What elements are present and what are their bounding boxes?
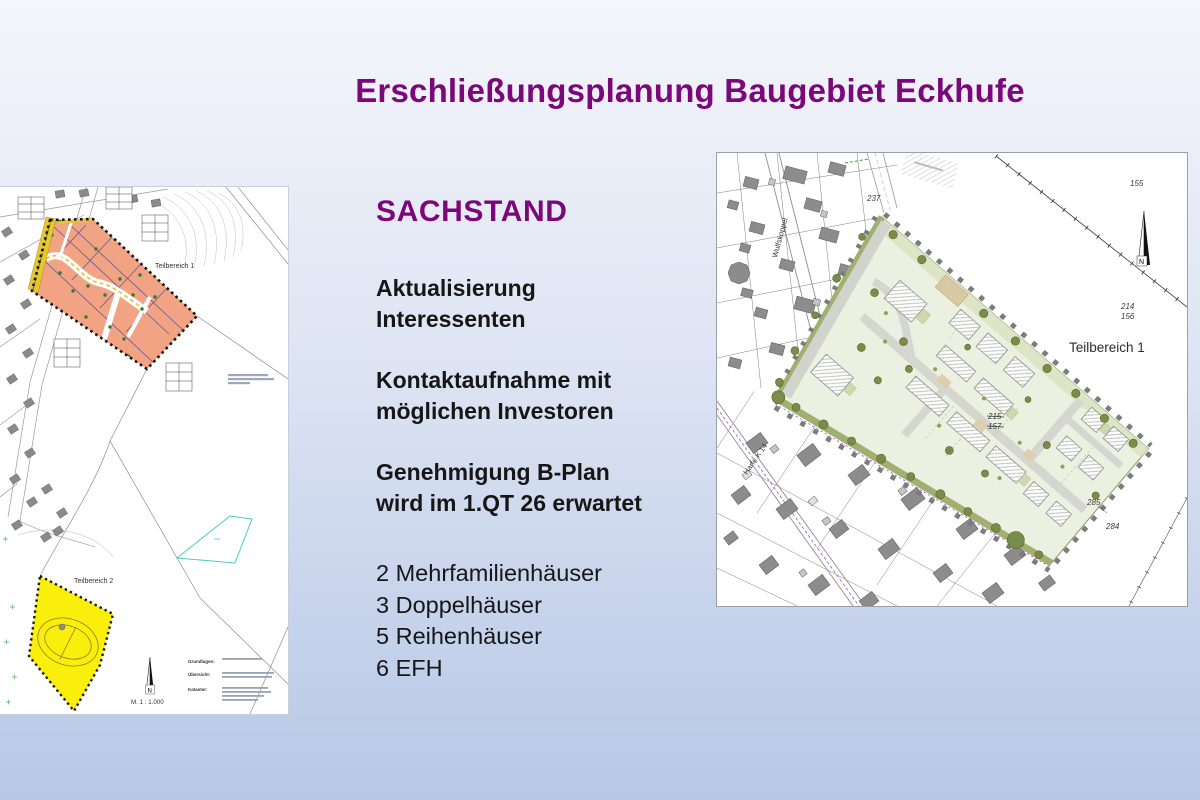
parcel-number: 156 xyxy=(1121,312,1135,321)
svg-text:Kataster:: Kataster: xyxy=(188,687,208,692)
left-map-svg: Teilbereich 1 Teilbereich 2 N M. 1 : 1.0… xyxy=(0,187,288,714)
parcel-number: 214 xyxy=(1120,302,1135,311)
list-item: 3 Doppelhäuser xyxy=(376,590,602,622)
map-scale-text: M. 1 : 1.000 xyxy=(131,699,164,706)
svg-text:Übersicht:: Übersicht: xyxy=(188,671,211,677)
right-map-siteplan: 155 237 214 156 215 157 285 284 Teilbere… xyxy=(716,152,1188,607)
paragraph-line: wird im 1.QT 26 erwartet xyxy=(376,488,642,519)
teilbereich1-label: Teilbereich 1 xyxy=(1069,340,1145,355)
paragraph-aktualisierung: Aktualisierung Interessenten xyxy=(376,273,536,335)
paragraph-kontaktaufnahme: Kontaktaufnahme mit möglichen Investoren xyxy=(376,365,614,427)
left-map-bplan-overview: Teilbereich 1 Teilbereich 2 N M. 1 : 1.0… xyxy=(0,186,289,715)
page-title: Erschließungsplanung Baugebiet Eckhufe xyxy=(180,72,1200,110)
svg-text:N: N xyxy=(148,689,152,695)
paragraph-line: Genehmigung B-Plan xyxy=(376,457,642,488)
housing-type-list: 2 Mehrfamilienhäuser 3 Doppelhäuser 5 Re… xyxy=(376,558,602,684)
paragraph-line: möglichen Investoren xyxy=(376,396,614,427)
svg-text:N: N xyxy=(1139,259,1144,266)
list-item: 2 Mehrfamilienhäuser xyxy=(376,558,602,590)
svg-text:Grundlagen:: Grundlagen: xyxy=(188,659,215,664)
right-map-svg: 155 237 214 156 215 157 285 284 Teilbere… xyxy=(717,153,1187,606)
parcel-number: 285 xyxy=(1086,498,1101,507)
parcel-number: 155 xyxy=(1130,179,1144,188)
sachstand-heading: SACHSTAND xyxy=(376,195,568,229)
list-item: 6 EFH xyxy=(376,653,602,685)
paragraph-line: Kontaktaufnahme mit xyxy=(376,365,614,396)
teilbereich1-label: Teilbereich 1 xyxy=(155,263,194,270)
slide: { "colors": { "bg-top": "#f5f6fc", "bg-b… xyxy=(0,0,1200,800)
parcel-number: 284 xyxy=(1105,522,1120,531)
paragraph-line: Interessenten xyxy=(376,304,536,335)
paragraph-genehmigung: Genehmigung B-Plan wird im 1.QT 26 erwar… xyxy=(376,457,642,519)
parcel-number: 237 xyxy=(866,194,881,203)
paragraph-line: Aktualisierung xyxy=(376,273,536,304)
list-item: 5 Reihenhäuser xyxy=(376,621,602,653)
teilbereich2-label: Teilbereich 2 xyxy=(74,578,113,585)
